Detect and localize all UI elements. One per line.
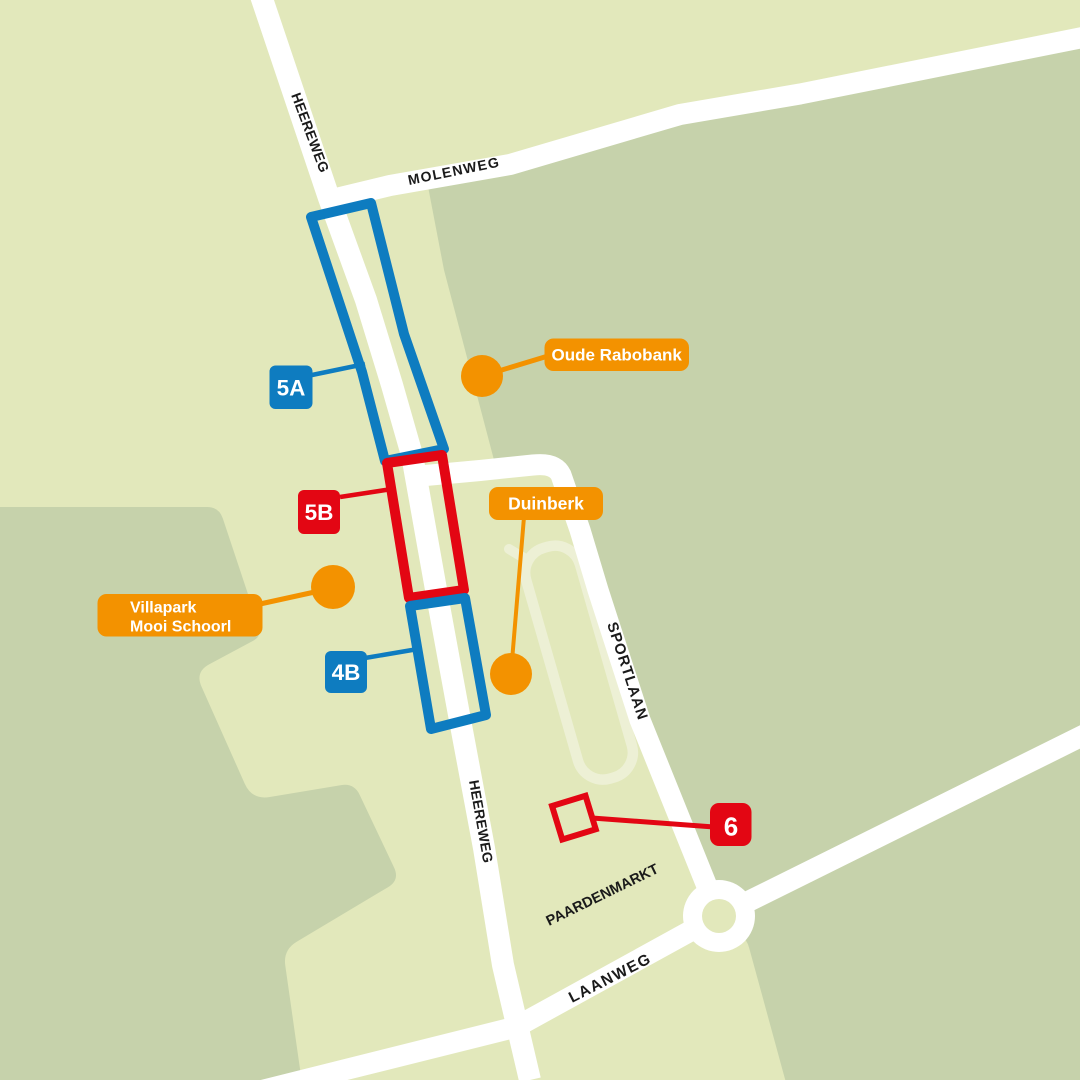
svg-text:Villapark: Villapark: [130, 600, 197, 617]
svg-text:Oude Rabobank: Oude Rabobank: [552, 346, 683, 365]
svg-text:5B: 5B: [305, 500, 334, 525]
svg-text:6: 6: [724, 812, 738, 842]
svg-text:Mooi Schoorl: Mooi Schoorl: [130, 619, 231, 636]
svg-text:4B: 4B: [332, 660, 361, 685]
svg-text:Duinberk: Duinberk: [508, 494, 584, 514]
svg-text:5A: 5A: [277, 376, 306, 401]
